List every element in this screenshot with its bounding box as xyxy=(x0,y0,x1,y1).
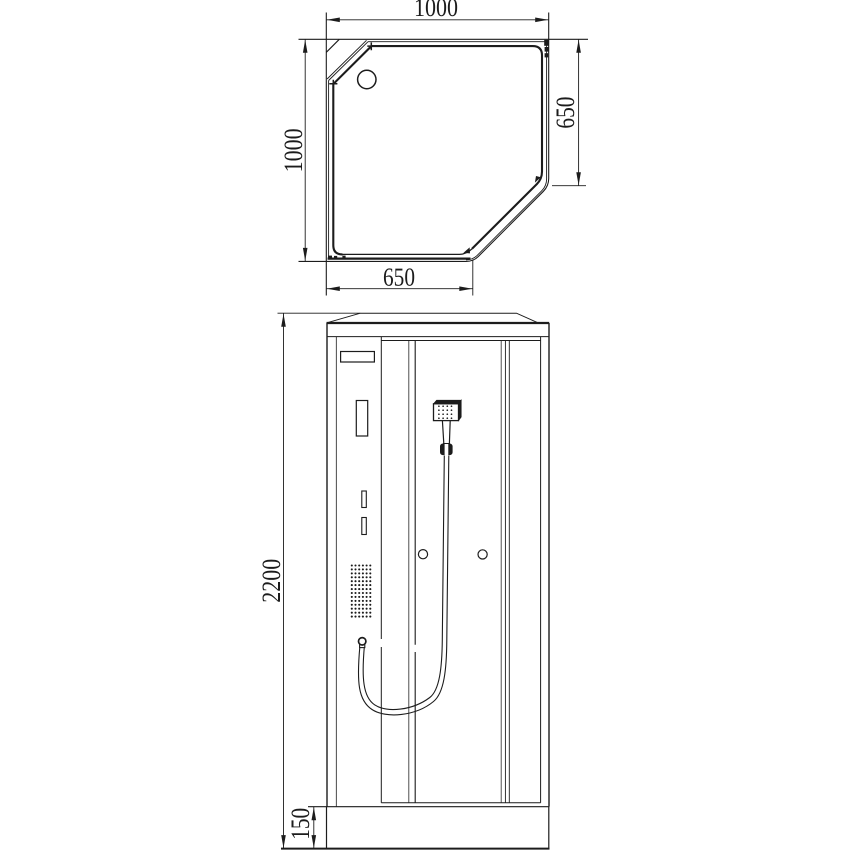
svg-text:150: 150 xyxy=(286,808,315,840)
svg-text:650: 650 xyxy=(383,263,415,292)
svg-text:2200: 2200 xyxy=(257,559,286,603)
svg-text:1000: 1000 xyxy=(414,0,458,22)
svg-text:650: 650 xyxy=(551,97,580,129)
svg-text:1000: 1000 xyxy=(279,128,308,172)
